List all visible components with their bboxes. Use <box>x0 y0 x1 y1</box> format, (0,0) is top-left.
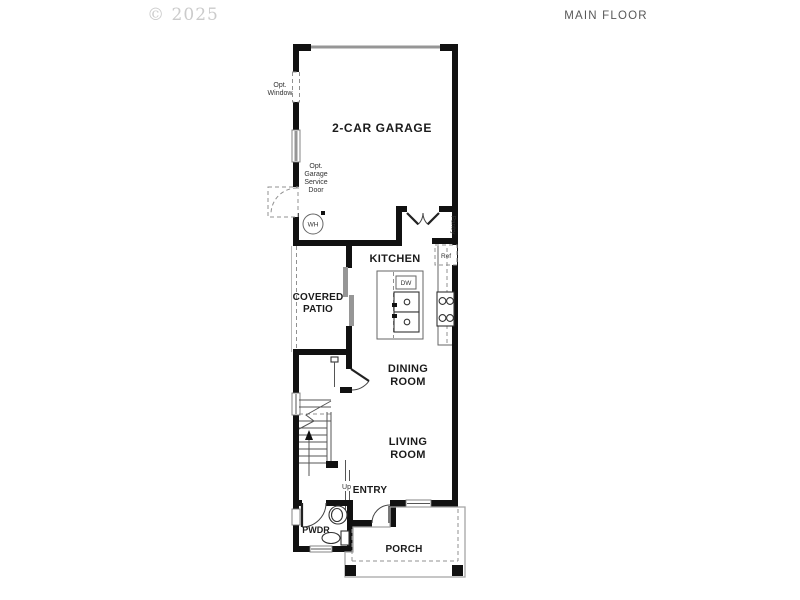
opt-window-label-1: Opt. <box>273 82 286 89</box>
pwdr-label: PWDR <box>302 525 330 535</box>
porch-structure <box>345 507 465 577</box>
porch-post-right <box>452 565 463 576</box>
entry-label: ENTRY <box>353 485 388 496</box>
dining-room-label-2: ROOM <box>390 376 425 388</box>
range-cooktop <box>437 292 454 326</box>
pwdr-side-window <box>292 509 300 525</box>
porch-post-left <box>345 565 356 576</box>
plan-title: MAIN FLOOR <box>564 10 648 22</box>
pantry: Pantry <box>432 216 458 244</box>
optional-window <box>293 72 300 102</box>
pantry-label: Pantry <box>450 216 457 236</box>
service-door-label-3: Service <box>304 179 327 186</box>
porch-label: PORCH <box>385 544 422 555</box>
patio-slider-door <box>343 267 348 297</box>
garage-entry-doors <box>407 213 439 224</box>
garage-door <box>310 46 440 49</box>
dishwasher-label: DW <box>401 280 413 287</box>
water-heater: WH <box>303 211 325 234</box>
service-door-label-2: Garage <box>304 171 327 178</box>
covered-patio-label-2: PATIO <box>303 304 333 315</box>
stairs-up-label: Up <box>342 484 351 491</box>
dining-room-label-1: DINING <box>388 363 428 375</box>
stair-break-line <box>299 401 331 429</box>
floorplan-drawing: © 2025 MAIN FLOOR WH <box>0 0 800 600</box>
living-room-label-2: ROOM <box>390 449 425 461</box>
service-door-label-4: Door <box>308 187 324 194</box>
porch-slab <box>345 507 465 577</box>
pwdr-sink <box>329 506 347 524</box>
copyright-watermark: © 2025 <box>147 5 219 25</box>
kitchen-island: DW <box>377 271 423 339</box>
faucet <box>392 303 397 307</box>
pwdr-door-swing <box>302 503 326 527</box>
patio-door-swing <box>351 381 369 390</box>
kitchen-label: KITCHEN <box>370 253 421 265</box>
refrigerator-label: Ref <box>441 253 451 260</box>
front-door-swing <box>372 505 390 523</box>
water-heater-label: WH <box>308 222 319 229</box>
service-door-label-1: Opt. <box>309 163 322 170</box>
entry-structure <box>353 500 458 527</box>
garage-structure <box>292 44 458 507</box>
garage-label: 2-CAR GARAGE <box>332 121 432 135</box>
living-room-label-1: LIVING <box>389 436 427 448</box>
right-exterior-wall <box>452 44 458 507</box>
floorplan-page: © 2025 MAIN FLOOR WH <box>0 0 800 600</box>
opt-window-label-2: Window <box>268 90 294 97</box>
covered-patio-label-1: COVERED <box>293 292 344 303</box>
optional-service-door <box>268 187 298 217</box>
